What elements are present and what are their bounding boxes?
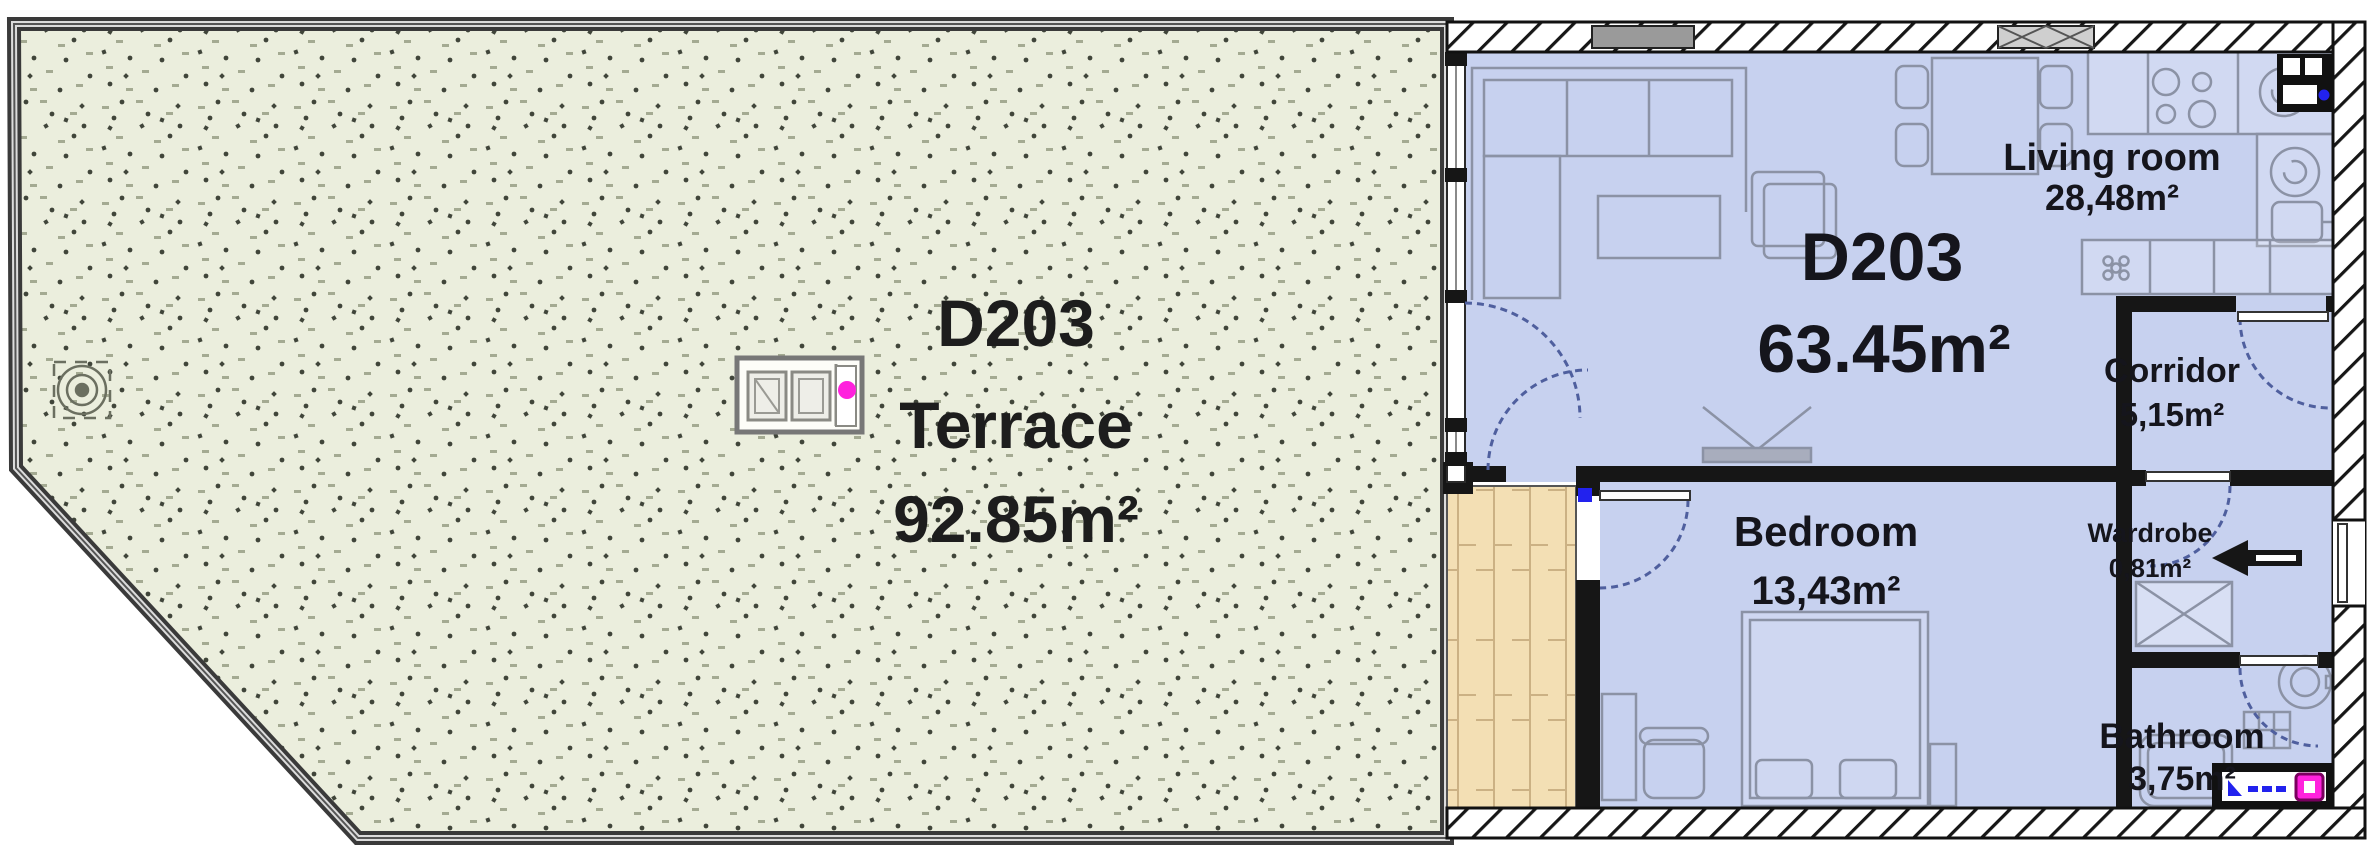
window: [1998, 26, 2094, 48]
apartment-area-label: 63.45m²: [1757, 311, 2010, 387]
terrace-code-label: D203: [937, 286, 1095, 360]
jamb-marker: [1578, 488, 1592, 502]
west-window-wall: [1445, 52, 1467, 482]
floor-plan: D203 Terrace 92.85m²: [0, 0, 2373, 865]
terrace-name-label: Terrace: [899, 388, 1133, 462]
bedroom-label: Bedroom: [1734, 508, 1918, 555]
terrace: D203 Terrace 92.85m²: [14, 24, 1447, 838]
window: [1592, 26, 1694, 48]
terrace-floor: [14, 24, 1447, 838]
kitchen-corner-unit: [2277, 54, 2333, 112]
bedroom-door-leaf: [1600, 491, 1690, 500]
terrace-furniture-icon: [737, 358, 862, 432]
corridor-area: 5,15m²: [2120, 396, 2225, 433]
wardrobe-area: 0,81m²: [2109, 553, 2192, 583]
terrace-area-label: 92.85m²: [893, 482, 1139, 556]
entrance-opening: [2333, 520, 2365, 606]
wardrobe-label: Wardrobe: [2087, 518, 2212, 548]
wardrobe-cabinet: [2136, 582, 2232, 646]
kitchen-side-counter: [2257, 134, 2338, 246]
living-room-label: Living room: [2003, 137, 2220, 179]
wardrobe-door-leaf: [2146, 472, 2230, 481]
bathroom-door-leaf: [2240, 656, 2318, 665]
bed: [1742, 612, 1956, 806]
bathroom-area: 3,75m²: [2128, 760, 2236, 798]
floor-plan-svg: D203 Terrace 92.85m²: [0, 0, 2373, 865]
deck: [1447, 486, 1576, 808]
living-room-area: 28,48m²: [2045, 177, 2179, 218]
bedroom-area: 13,43m²: [1752, 569, 1901, 613]
corridor-label: Corridor: [2104, 352, 2240, 390]
corridor-door-leaf: [2238, 312, 2328, 321]
bathroom-label: Bathroom: [2099, 717, 2264, 756]
entrance-door-leaf: [2338, 524, 2347, 602]
apartment-code-label: D203: [1801, 219, 1964, 295]
